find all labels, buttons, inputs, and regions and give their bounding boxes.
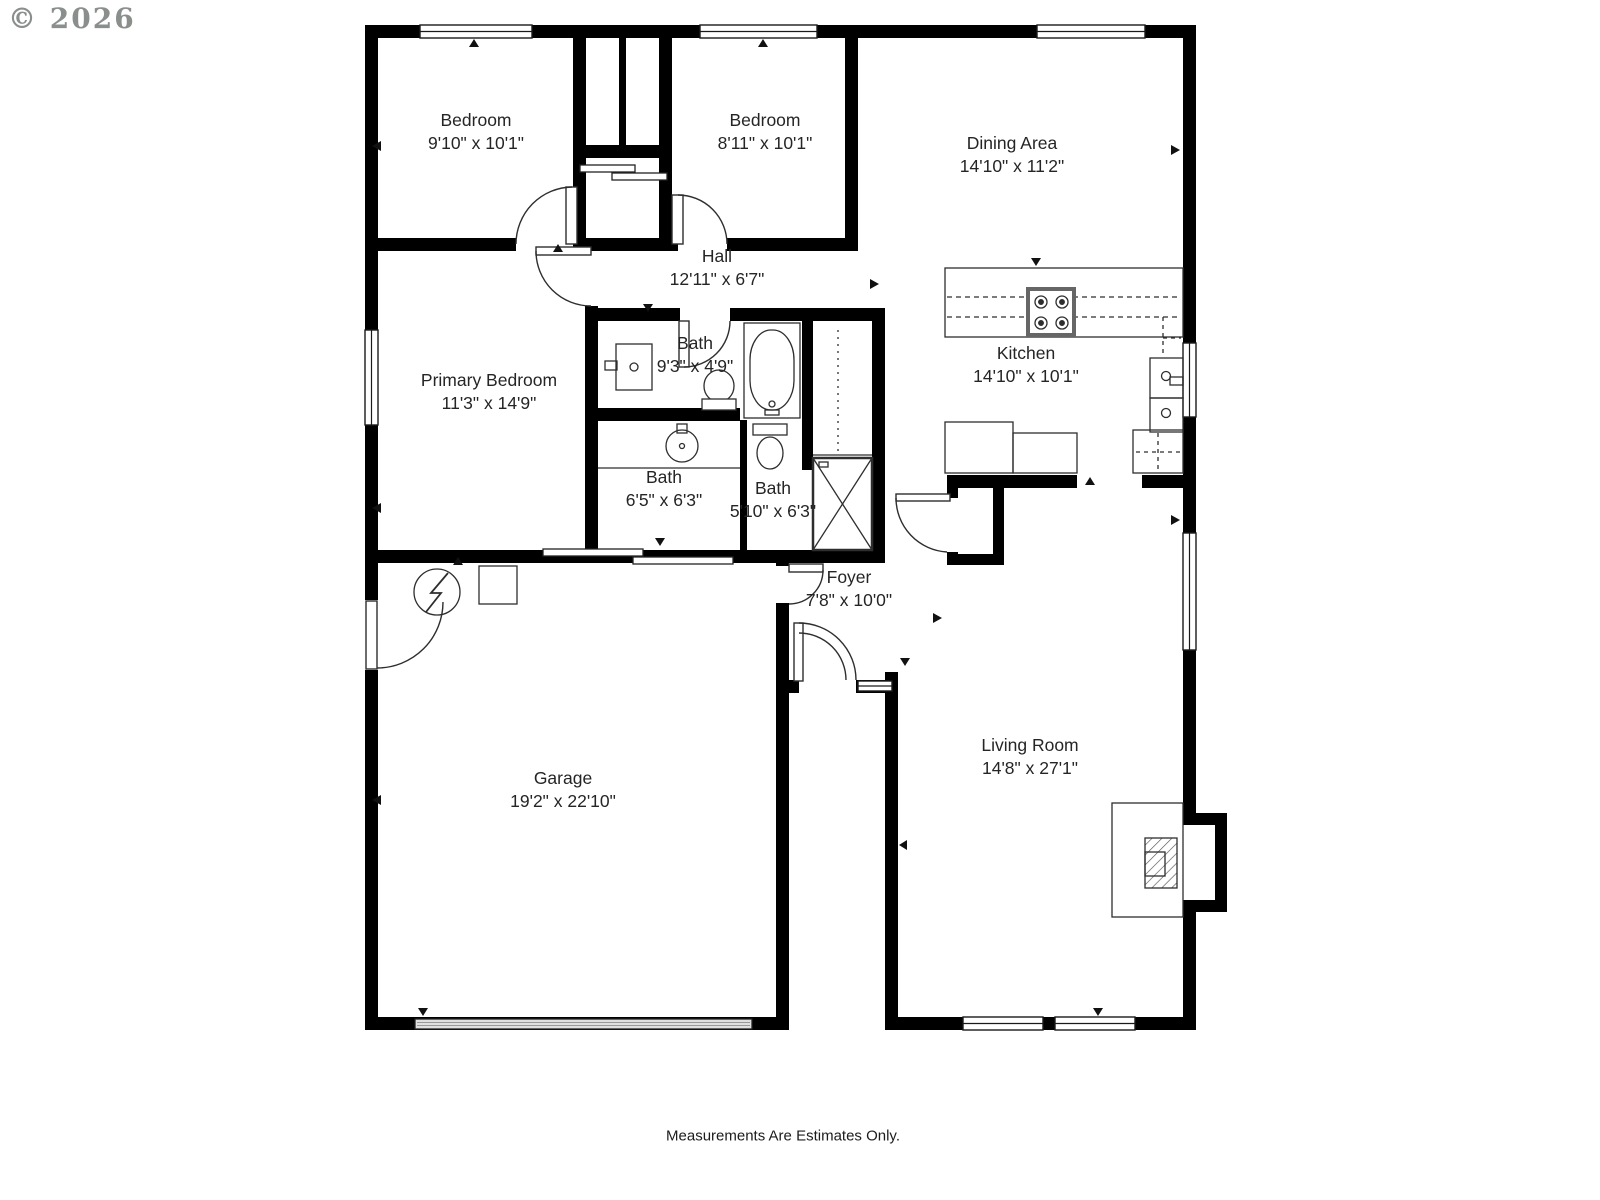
disclaimer-text: Measurements Are Estimates Only. xyxy=(666,1128,900,1145)
water-heater-icon xyxy=(414,569,460,615)
room-name: Bedroom xyxy=(428,109,524,132)
room-label-kitchen: Kitchen 14'10" x 10'1" xyxy=(973,342,1079,388)
room-label-bedroom-2: Bedroom 8'11" x 10'1" xyxy=(718,109,813,155)
room-label-bath-mid: Bath 6'5" x 6'3" xyxy=(626,466,703,512)
room-name: Hall xyxy=(670,245,765,268)
room-name: Foyer xyxy=(806,566,892,589)
walls-layer xyxy=(365,25,1227,1030)
room-label-primary-bedroom: Primary Bedroom 11'3" x 14'9" xyxy=(421,369,557,415)
room-name: Bedroom xyxy=(718,109,813,132)
closet-rod xyxy=(813,330,872,455)
room-name: Dining Area xyxy=(960,132,1064,155)
kitchen-island xyxy=(945,422,1077,473)
room-dims: 14'10" x 10'1" xyxy=(973,365,1079,388)
room-dims: 9'3" x 4'9" xyxy=(657,355,734,378)
door-bedroom-1 xyxy=(516,187,577,244)
room-dims: 14'8" x 27'1" xyxy=(981,757,1078,780)
room-dims: 19'2" x 22'10" xyxy=(510,790,616,813)
door-foyer-closet xyxy=(896,494,950,552)
door-front-entry xyxy=(794,623,856,681)
door-garage-side xyxy=(366,601,443,669)
floor-plan-drawing xyxy=(0,0,1600,1200)
copyright-watermark: © 2026 xyxy=(8,2,136,35)
door-bedroom-2 xyxy=(672,195,727,244)
room-name: Bath xyxy=(626,466,703,489)
round-sink-icon xyxy=(598,424,740,468)
toilet-icon xyxy=(753,424,787,469)
room-label-dining: Dining Area 14'10" x 11'2" xyxy=(960,132,1064,178)
room-dims: 11'3" x 14'9" xyxy=(421,392,557,415)
room-label-garage: Garage 19'2" x 22'10" xyxy=(510,767,616,813)
room-dims: 8'11" x 10'1" xyxy=(718,132,813,155)
room-name: Living Room xyxy=(981,734,1078,757)
room-name: Garage xyxy=(510,767,616,790)
shower-icon xyxy=(813,458,872,550)
room-dims: 9'10" x 10'1" xyxy=(428,132,524,155)
room-label-bath-upper: Bath 9'3" x 4'9" xyxy=(657,332,734,378)
bathtub-icon xyxy=(744,323,800,418)
room-name: Primary Bedroom xyxy=(421,369,557,392)
floor-plan-page: Bedroom 9'10" x 10'1" Bedroom 8'11" x 10… xyxy=(0,0,1600,1200)
room-name: Kitchen xyxy=(973,342,1079,365)
room-dims: 7'8" x 10'0" xyxy=(806,589,892,612)
door-primary-bedroom xyxy=(536,247,591,306)
room-dims: 14'10" x 11'2" xyxy=(960,155,1064,178)
room-label-bedroom-1: Bedroom 9'10" x 10'1" xyxy=(428,109,524,155)
room-label-living: Living Room 14'8" x 27'1" xyxy=(981,734,1078,780)
room-label-hall: Hall 12'11" x 6'7" xyxy=(670,245,765,291)
vanity-sink-icon xyxy=(605,344,652,390)
kitchen-sink-icon xyxy=(1150,358,1183,432)
stove-icon xyxy=(1028,289,1074,335)
room-dims: 12'11" x 6'7" xyxy=(670,268,765,291)
room-name: Bath xyxy=(730,477,816,500)
room-label-bath-low: Bath 5'10" x 6'3" xyxy=(730,477,816,523)
room-dims: 5'10" x 6'3" xyxy=(730,500,816,523)
room-label-foyer: Foyer 7'8" x 10'0" xyxy=(806,566,892,612)
fireplace-icon xyxy=(1112,803,1183,917)
room-dims: 6'5" x 6'3" xyxy=(626,489,703,512)
refrigerator-icon xyxy=(1133,430,1183,473)
room-name: Bath xyxy=(657,332,734,355)
furnace-icon xyxy=(479,566,517,604)
garage-door xyxy=(415,1019,752,1029)
